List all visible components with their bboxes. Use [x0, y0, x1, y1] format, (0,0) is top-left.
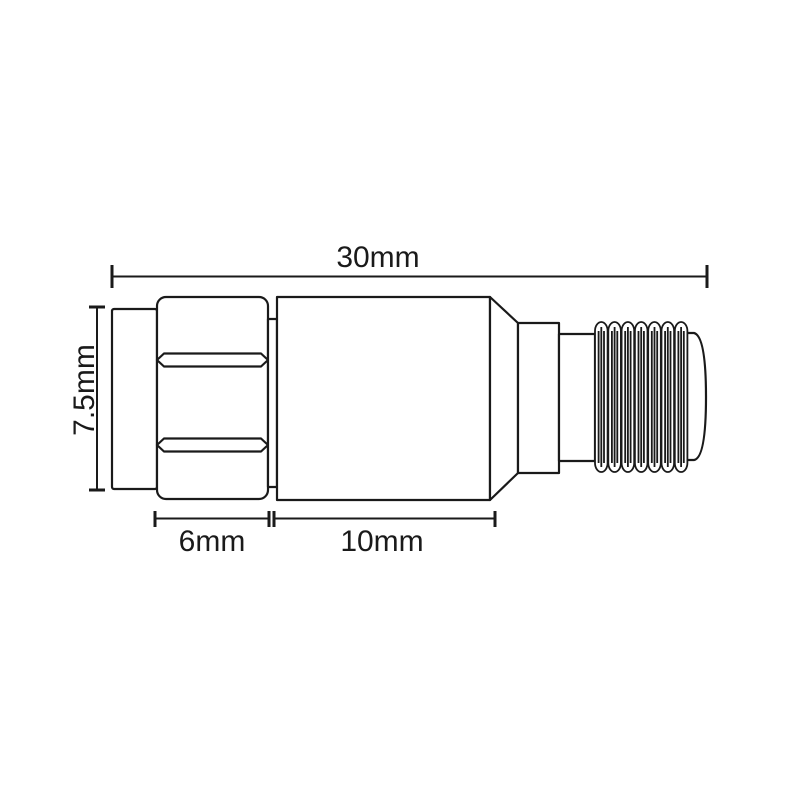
hex-facet-line-bottom	[157, 439, 268, 452]
hex-length-label: 6mm	[179, 525, 246, 558]
connector-tip	[112, 309, 157, 489]
thread-section	[595, 322, 687, 472]
neck-tube	[559, 334, 595, 461]
thread-ridge	[622, 322, 635, 472]
thread-ridge	[662, 322, 675, 472]
collar-washer	[268, 319, 277, 487]
body-length-label: 10mm	[340, 525, 423, 558]
technical-drawing-page: 30mm 7.5mm 6mm 10mm	[0, 0, 800, 800]
rear-flange	[518, 323, 559, 473]
taper-cone	[490, 297, 518, 500]
overall-length-label: 30mm	[336, 241, 419, 274]
thread-ridge	[648, 322, 661, 472]
connector-outline	[112, 297, 706, 500]
connector-dimension-drawing: 30mm 7.5mm 6mm 10mm	[0, 0, 800, 800]
thread-ridge	[595, 322, 608, 472]
end-cap	[686, 333, 706, 460]
thread-ridge	[675, 322, 688, 472]
overall-height-label: 7.5mm	[68, 344, 101, 436]
thread-ridge	[635, 322, 648, 472]
hex-nut	[157, 297, 268, 499]
thread-ridge	[608, 322, 621, 472]
hex-facet-line-top	[157, 354, 268, 367]
main-body	[277, 297, 490, 500]
